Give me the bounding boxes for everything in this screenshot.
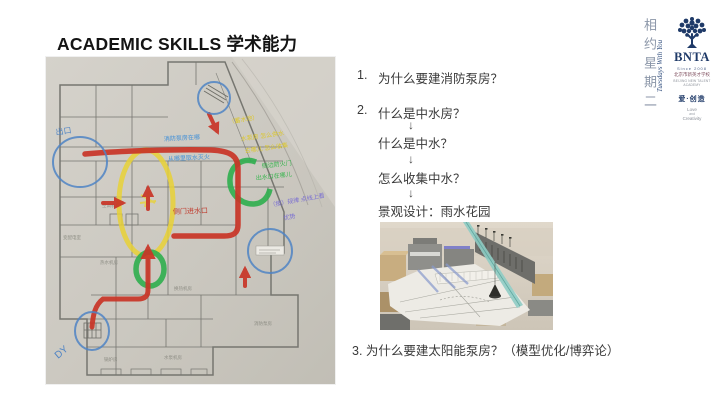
- brand-sidebar: 相约星期二 Tuesdays With You BNTA Since 2008: [640, 8, 718, 158]
- bnta-since: Since 2008: [668, 66, 716, 71]
- model-photo: [380, 222, 553, 330]
- bnta-logo: BNTA Since 2008 北京市新英才学校 BEIJING NEW TAL…: [668, 15, 716, 121]
- flow-down-arrow-icon: ↓: [408, 152, 414, 166]
- floor-plan-photo: 空调机房 热水机房 变配电室 换热机房 水泵机房 锅炉房 消防泵房: [46, 57, 335, 384]
- slogan-cn: 爱·创造: [668, 94, 716, 104]
- question-2-text: 什么是中水房？: [378, 103, 466, 122]
- flow-down-arrow-icon: ↓: [408, 186, 414, 200]
- svg-text:热水机房: 热水机房: [100, 259, 118, 266]
- flow-down-arrow-icon: ↓: [408, 118, 414, 132]
- svg-text:消防泵房: 消防泵房: [254, 320, 272, 327]
- sidebar-rotated-subtitle: Tuesdays With You: [656, 20, 664, 112]
- svg-text:变配电室: 变配电室: [63, 234, 81, 241]
- svg-text:水泵机房: 水泵机房: [164, 354, 182, 361]
- question-2-number: 2.: [357, 103, 378, 122]
- flow-step-1: 什么是中水？: [378, 133, 453, 152]
- question-item-1: 1. 为什么要建消防泵房？: [357, 68, 503, 87]
- svg-text:换热机房: 换热机房: [174, 285, 192, 292]
- question-1-text: 为什么要建消防泵房？: [378, 68, 503, 87]
- slogan-en-creativity: Creativity: [668, 116, 716, 121]
- question-1-number: 1.: [357, 68, 378, 87]
- svg-text:锅炉房: 锅炉房: [104, 356, 118, 363]
- bnta-tree-icon: [675, 15, 709, 51]
- whiteout-patch: [256, 246, 284, 255]
- page-title: ACADEMIC SKILLS 学术能力: [57, 31, 297, 56]
- question-item-3: 3. 为什么要建太阳能泵房？（模型优化/博弈论）: [352, 342, 634, 361]
- school-name-en: BEIJING NEW TALENT ACADEMY: [668, 79, 716, 88]
- presentation-slide: ACADEMIC SKILLS 学术能力: [0, 0, 720, 405]
- flow-step-3: 景观设计：雨水花园: [378, 201, 491, 220]
- school-name-cn: 北京市新英才学校: [668, 72, 716, 78]
- flow-step-2: 怎么收集中水？: [378, 168, 466, 187]
- bnta-wordmark: BNTA: [668, 50, 716, 65]
